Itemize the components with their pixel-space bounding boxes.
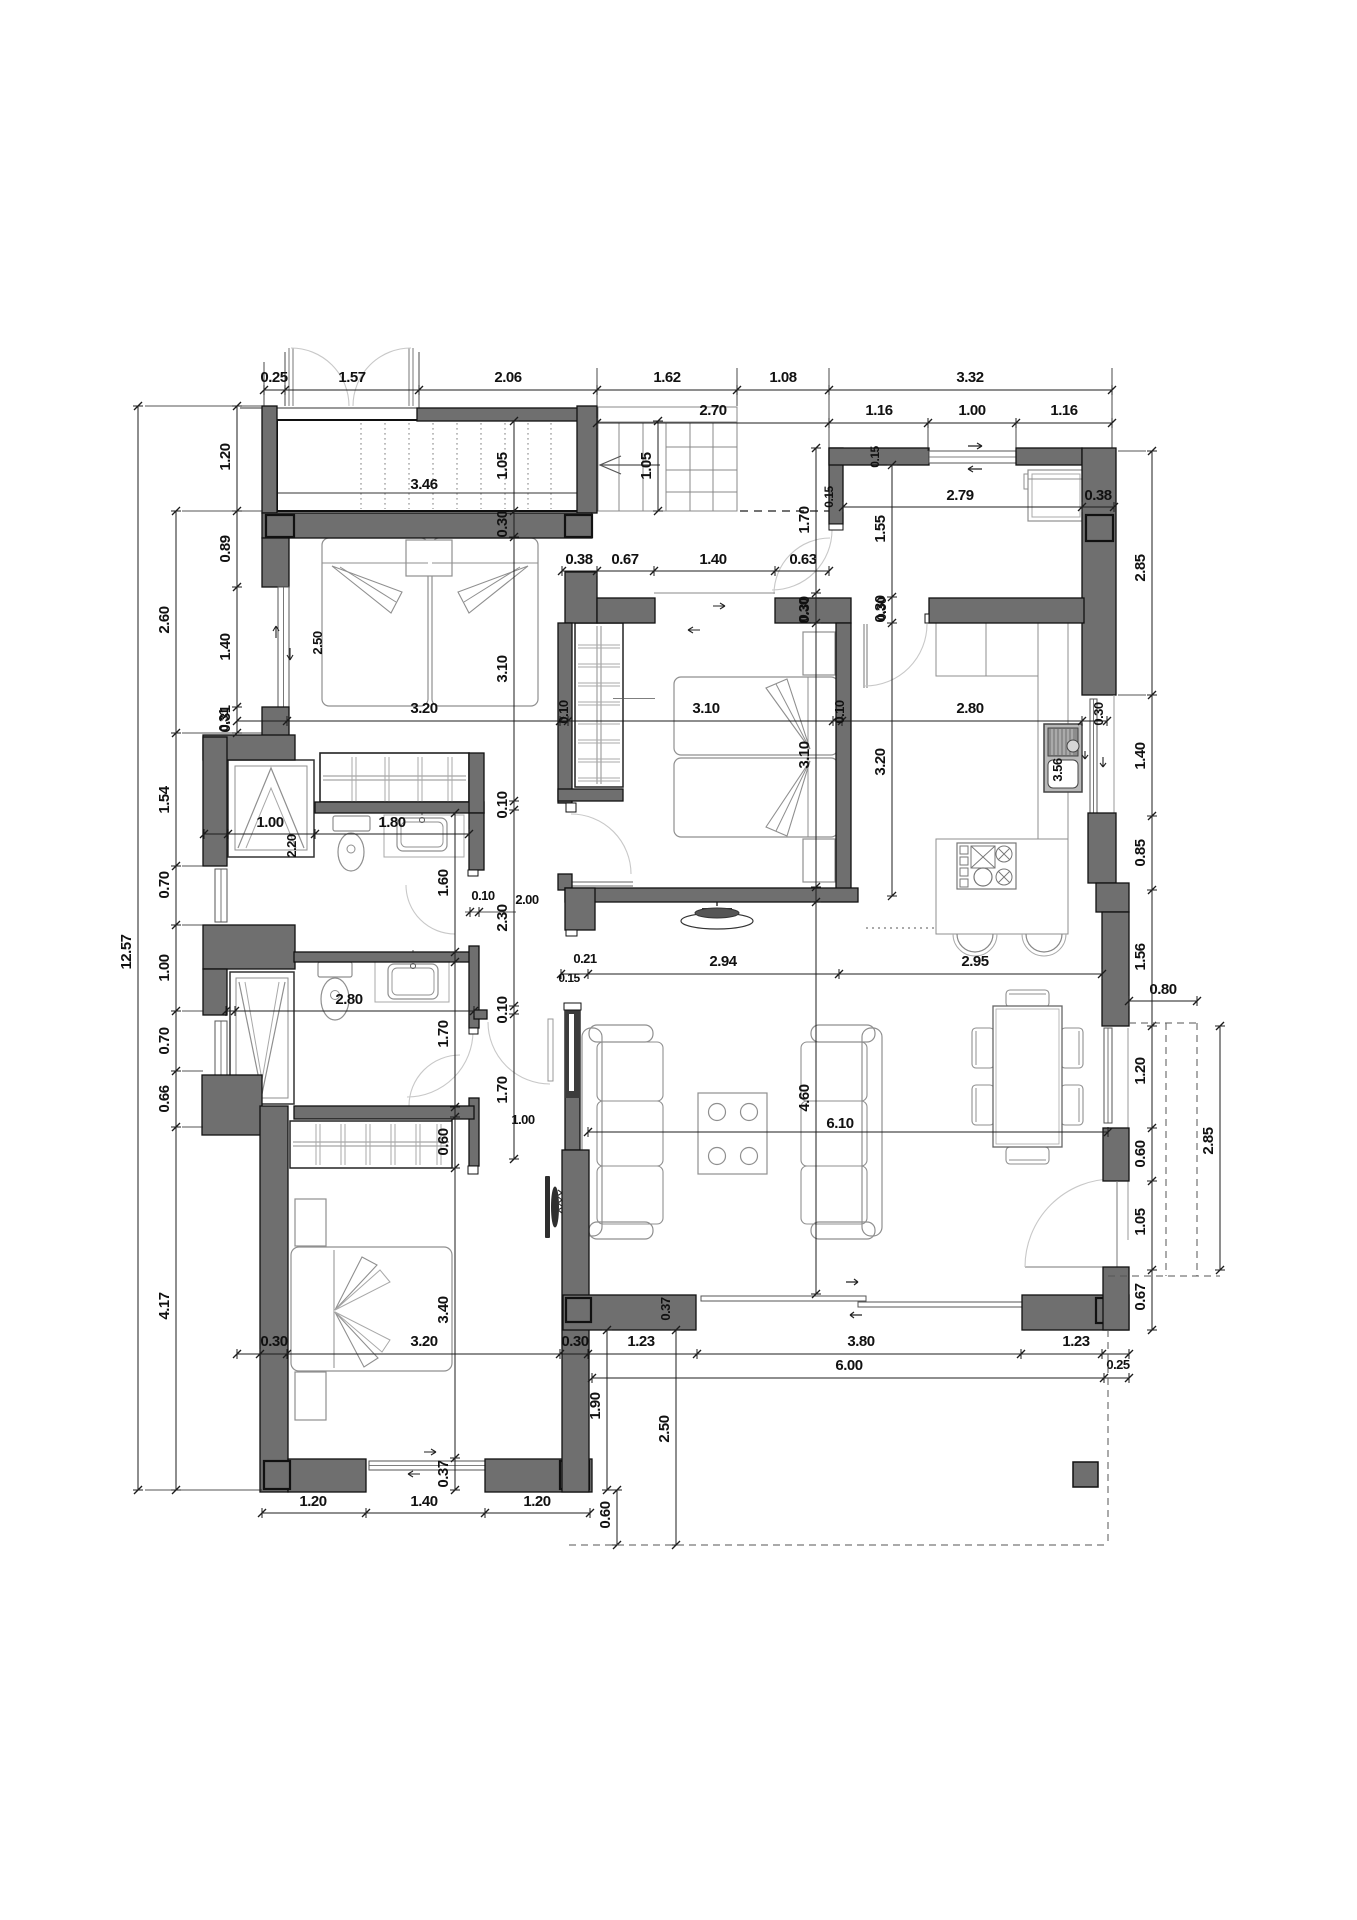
svg-text:0.67: 0.67	[611, 551, 638, 568]
svg-text:1.20: 1.20	[523, 1493, 550, 1510]
svg-text:3.80: 3.80	[847, 1333, 874, 1350]
svg-text:2.30: 2.30	[494, 904, 511, 931]
svg-text:1.62: 1.62	[653, 369, 680, 386]
svg-text:1.55: 1.55	[872, 515, 889, 542]
svg-text:1.70: 1.70	[494, 1076, 511, 1103]
svg-text:1.54: 1.54	[156, 785, 173, 813]
svg-text:1.20: 1.20	[217, 443, 234, 470]
svg-text:3.56: 3.56	[1050, 758, 1065, 782]
svg-text:0.30: 0.30	[561, 1333, 588, 1350]
svg-text:0.10: 0.10	[471, 888, 495, 903]
svg-text:4.17: 4.17	[156, 1292, 173, 1319]
svg-text:1.40: 1.40	[1132, 742, 1149, 769]
svg-text:1.00: 1.00	[156, 954, 173, 981]
svg-text:2.85: 2.85	[1200, 1127, 1217, 1154]
svg-text:2.60: 2.60	[156, 606, 173, 633]
svg-text:0.30: 0.30	[494, 510, 511, 537]
svg-text:3.20: 3.20	[872, 748, 889, 775]
svg-text:0.30: 0.30	[874, 597, 889, 621]
svg-text:0.70: 0.70	[156, 871, 173, 898]
svg-text:0.63: 0.63	[789, 551, 816, 568]
svg-text:1.80: 1.80	[378, 814, 405, 831]
svg-text:0.66: 0.66	[156, 1085, 173, 1112]
svg-text:0.38: 0.38	[565, 551, 592, 568]
svg-text:2.95: 2.95	[961, 953, 988, 970]
svg-text:0.15: 0.15	[868, 445, 882, 467]
svg-text:0.60: 0.60	[1132, 1140, 1149, 1167]
svg-text:3.46: 3.46	[410, 476, 437, 493]
svg-text:0.15: 0.15	[822, 485, 836, 507]
svg-text:1.70: 1.70	[435, 1020, 452, 1047]
svg-text:3.10: 3.10	[692, 700, 719, 717]
svg-text:1.60: 1.60	[435, 869, 452, 896]
svg-text:3.10: 3.10	[494, 655, 511, 682]
svg-text:1.05: 1.05	[1132, 1208, 1149, 1235]
svg-text:0.38: 0.38	[1084, 487, 1111, 504]
svg-text:1.23: 1.23	[627, 1333, 654, 1350]
svg-text:3.20: 3.20	[410, 700, 437, 717]
svg-text:0.10: 0.10	[556, 700, 571, 724]
svg-text:2.94: 2.94	[709, 953, 737, 970]
svg-text:1.00: 1.00	[511, 1112, 535, 1127]
svg-text:1.05: 1.05	[638, 452, 655, 479]
svg-text:3.40: 3.40	[435, 1296, 452, 1323]
svg-text:1.40: 1.40	[410, 1493, 437, 1510]
svg-text:1.05: 1.05	[494, 452, 511, 479]
svg-text:2.50: 2.50	[656, 1415, 673, 1442]
svg-text:2.50: 2.50	[310, 631, 325, 655]
svg-text:1.40: 1.40	[699, 551, 726, 568]
svg-text:2.80: 2.80	[335, 991, 362, 1008]
svg-text:2.85: 2.85	[1132, 554, 1149, 581]
svg-text:0.31: 0.31	[217, 705, 234, 732]
svg-text:2.20: 2.20	[284, 834, 299, 858]
svg-text:1.57: 1.57	[338, 369, 365, 386]
svg-text:0.37: 0.37	[658, 1297, 673, 1321]
svg-text:0.10: 0.10	[494, 791, 511, 818]
svg-text:1.00: 1.00	[256, 814, 283, 831]
svg-text:0.10: 0.10	[494, 996, 511, 1023]
svg-text:0.30: 0.30	[1091, 702, 1106, 726]
svg-text:1.00: 1.00	[958, 402, 985, 419]
svg-text:0.10: 0.10	[832, 700, 847, 724]
svg-text:4.60: 4.60	[796, 1084, 813, 1111]
svg-text:0.30: 0.30	[260, 1333, 287, 1350]
svg-text:1.16: 1.16	[865, 402, 892, 419]
svg-text:0.37: 0.37	[435, 1460, 452, 1487]
svg-text:3.10: 3.10	[796, 741, 813, 768]
svg-text:12.57: 12.57	[118, 934, 135, 969]
svg-text:0.30: 0.30	[796, 598, 811, 622]
svg-text:2.00: 2.00	[515, 892, 539, 907]
svg-text:2.79: 2.79	[946, 487, 973, 504]
svg-text:0.85: 0.85	[1132, 839, 1149, 866]
svg-text:1.23: 1.23	[1062, 1333, 1089, 1350]
svg-text:0.89: 0.89	[217, 535, 234, 562]
svg-text:3.20: 3.20	[410, 1333, 437, 1350]
svg-text:1.20: 1.20	[1132, 1057, 1149, 1084]
svg-text:2.80: 2.80	[956, 700, 983, 717]
svg-text:1.16: 1.16	[1050, 402, 1077, 419]
svg-text:0.25: 0.25	[260, 369, 287, 386]
svg-text:1.20: 1.20	[299, 1493, 326, 1510]
svg-text:0.25: 0.25	[1106, 1357, 1130, 1372]
svg-text:1.70: 1.70	[796, 506, 813, 533]
svg-text:2.06: 2.06	[494, 369, 521, 386]
svg-text:1.56: 1.56	[1132, 943, 1149, 970]
svg-text:3.32: 3.32	[956, 369, 983, 386]
svg-text:0.80: 0.80	[1149, 981, 1176, 998]
svg-text:6.00: 6.00	[835, 1357, 862, 1374]
svg-text:0.60: 0.60	[597, 1501, 614, 1528]
svg-text:6.10: 6.10	[826, 1115, 853, 1132]
svg-text:0.21: 0.21	[573, 951, 597, 966]
svg-text:2.70: 2.70	[699, 402, 726, 419]
svg-text:0.15: 0.15	[558, 971, 580, 985]
svg-text:0.60: 0.60	[435, 1128, 452, 1155]
svg-text:1.90: 1.90	[587, 1392, 604, 1419]
svg-text:0.70: 0.70	[156, 1027, 173, 1054]
svg-text:1.08: 1.08	[769, 369, 796, 386]
svg-text:1.40: 1.40	[217, 633, 234, 660]
svg-text:0.67: 0.67	[1132, 1283, 1149, 1310]
